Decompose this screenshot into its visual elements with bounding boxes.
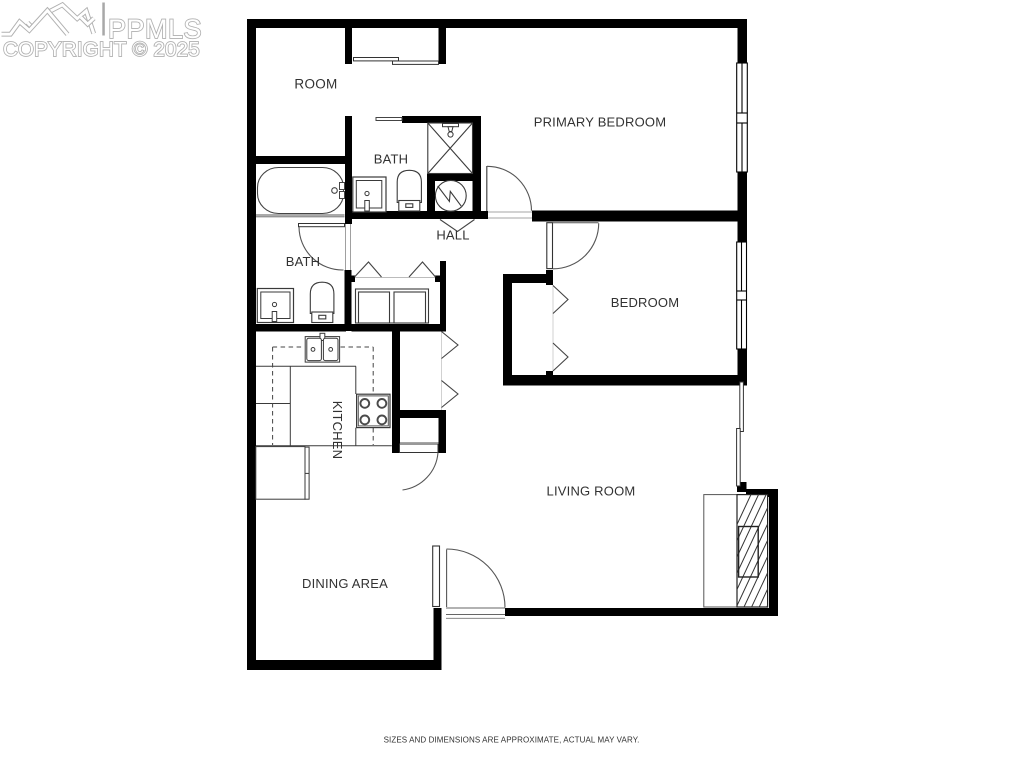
svg-text:LIVING ROOM: LIVING ROOM (547, 484, 636, 499)
svg-text:SIZES AND DIMENSIONS ARE APPRO: SIZES AND DIMENSIONS ARE APPROXIMATE, AC… (384, 735, 640, 744)
svg-text:HALL: HALL (436, 228, 469, 243)
svg-text:COPYRIGHT © 2025: COPYRIGHT © 2025 (3, 38, 200, 61)
svg-text:BEDROOM: BEDROOM (611, 295, 680, 310)
svg-text:KITCHEN: KITCHEN (330, 401, 345, 459)
svg-text:ROOM: ROOM (294, 77, 337, 92)
svg-text:BATH: BATH (374, 152, 409, 167)
svg-text:BATH: BATH (286, 254, 321, 269)
svg-text:PRIMARY BEDROOM: PRIMARY BEDROOM (534, 115, 667, 130)
svg-text:DINING AREA: DINING AREA (302, 576, 388, 591)
